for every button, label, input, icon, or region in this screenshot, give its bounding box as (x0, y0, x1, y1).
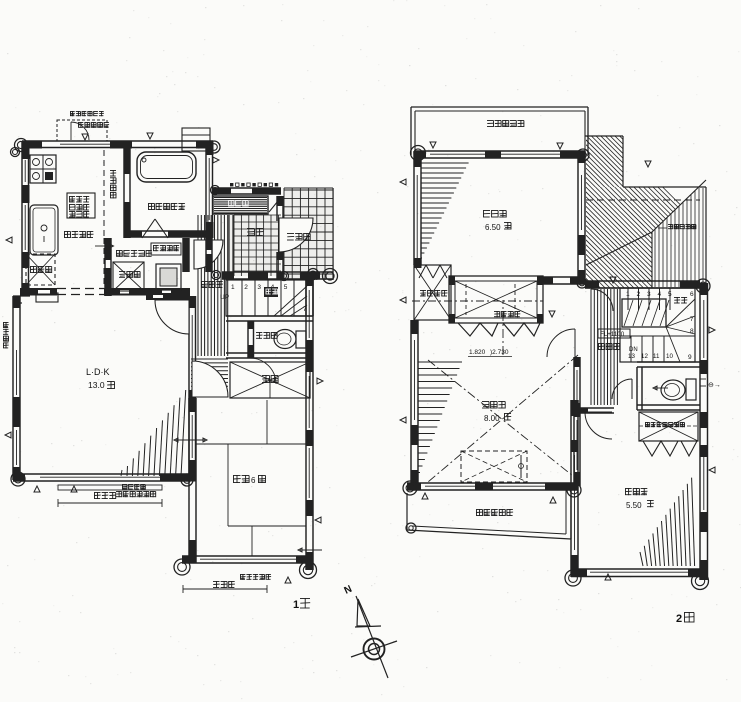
svg-text:UP: UP (220, 294, 229, 301)
svg-text:1: 1 (293, 599, 299, 611)
svg-text:2: 2 (676, 613, 682, 625)
svg-text:FL+1100: FL+1100 (600, 331, 625, 338)
svg-text:13: 13 (628, 353, 635, 360)
svg-text:3: 3 (647, 291, 651, 298)
svg-text:2: 2 (244, 284, 248, 291)
svg-text:10: 10 (666, 353, 673, 360)
svg-text:5: 5 (668, 291, 672, 298)
svg-text:6: 6 (690, 291, 694, 298)
svg-text:8: 8 (690, 328, 694, 335)
svg-text:1: 1 (231, 284, 235, 291)
svg-text:4: 4 (658, 291, 662, 298)
svg-text:5.50: 5.50 (626, 501, 642, 510)
svg-text:DN: DN (629, 347, 638, 353)
svg-text:1.820: 1.820 (469, 349, 486, 356)
svg-text:7: 7 (690, 316, 694, 323)
svg-text:L·D·K: L·D·K (86, 367, 110, 377)
svg-text:1: 1 (626, 291, 630, 298)
svg-text:9: 9 (688, 354, 692, 361)
svg-text:13.0: 13.0 (88, 380, 105, 390)
svg-text:6: 6 (251, 476, 256, 485)
svg-text:2: 2 (637, 291, 641, 298)
svg-text:3: 3 (257, 284, 261, 291)
svg-text:5: 5 (284, 284, 288, 291)
svg-text:⊖→: ⊖→ (708, 382, 721, 389)
svg-text:11: 11 (653, 353, 660, 360)
svg-text:12: 12 (641, 353, 648, 360)
svg-text:)2.730: )2.730 (490, 349, 509, 356)
svg-text:6.50: 6.50 (485, 223, 501, 232)
